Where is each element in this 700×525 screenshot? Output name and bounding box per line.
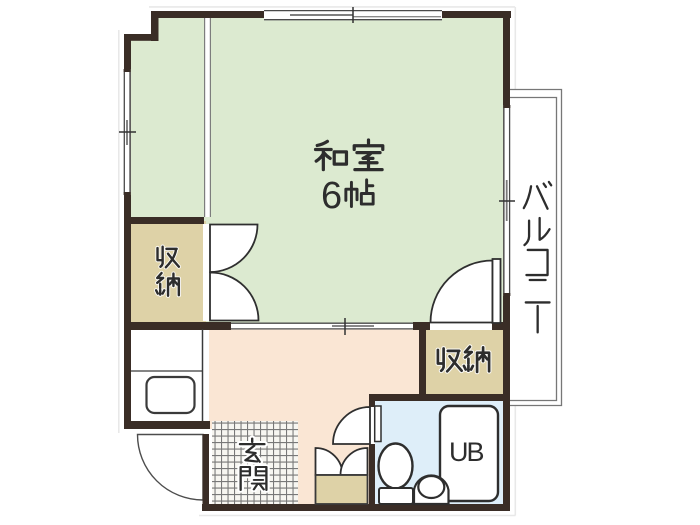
svg-text:UB: UB [449, 437, 483, 467]
svg-text:6: 6 [321, 175, 342, 217]
